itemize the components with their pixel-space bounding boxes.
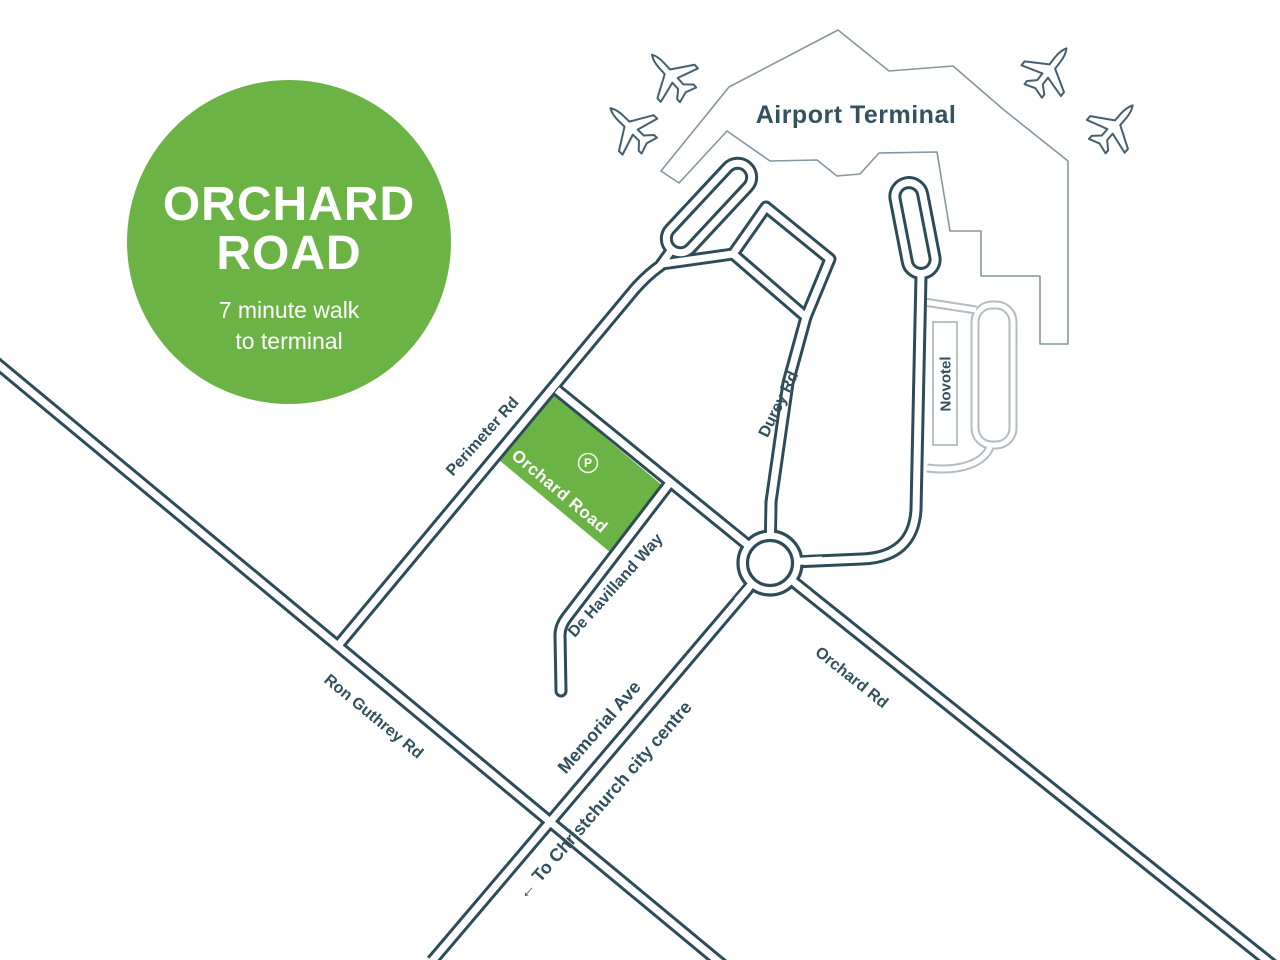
novotel-label: Novotel [937, 356, 954, 411]
badge-subtitle-line2: to terminal [235, 328, 342, 354]
badge-subtitle-line1: 7 minute walk [219, 297, 360, 323]
orchard-road-badge: ORCHARD ROAD 7 minute walk to terminal [127, 80, 451, 404]
road-durey-casing [770, 317, 806, 563]
badge-title-line2: ROAD [216, 227, 361, 280]
road-east-arm-casing [770, 276, 921, 563]
novotel-building: Novotel [933, 322, 957, 445]
map-canvas: Novotel P Orchard Road Airport Terminal … [0, 0, 1280, 960]
plane-icon [633, 38, 706, 112]
label-ron-guthrey-rd: Ron Guthrey Rd [321, 671, 426, 762]
badge-title-line1: ORCHARD [163, 178, 415, 231]
plane-icon [1014, 33, 1087, 106]
plane-icon [593, 90, 667, 163]
airport-terminal-label: Airport Terminal [756, 101, 957, 129]
orchard-road-map: Novotel P Orchard Road Airport Terminal … [0, 0, 1280, 960]
plane-icon [1078, 89, 1151, 163]
airport-terminal-outline [661, 30, 1068, 344]
parking-symbol: P [584, 456, 592, 470]
